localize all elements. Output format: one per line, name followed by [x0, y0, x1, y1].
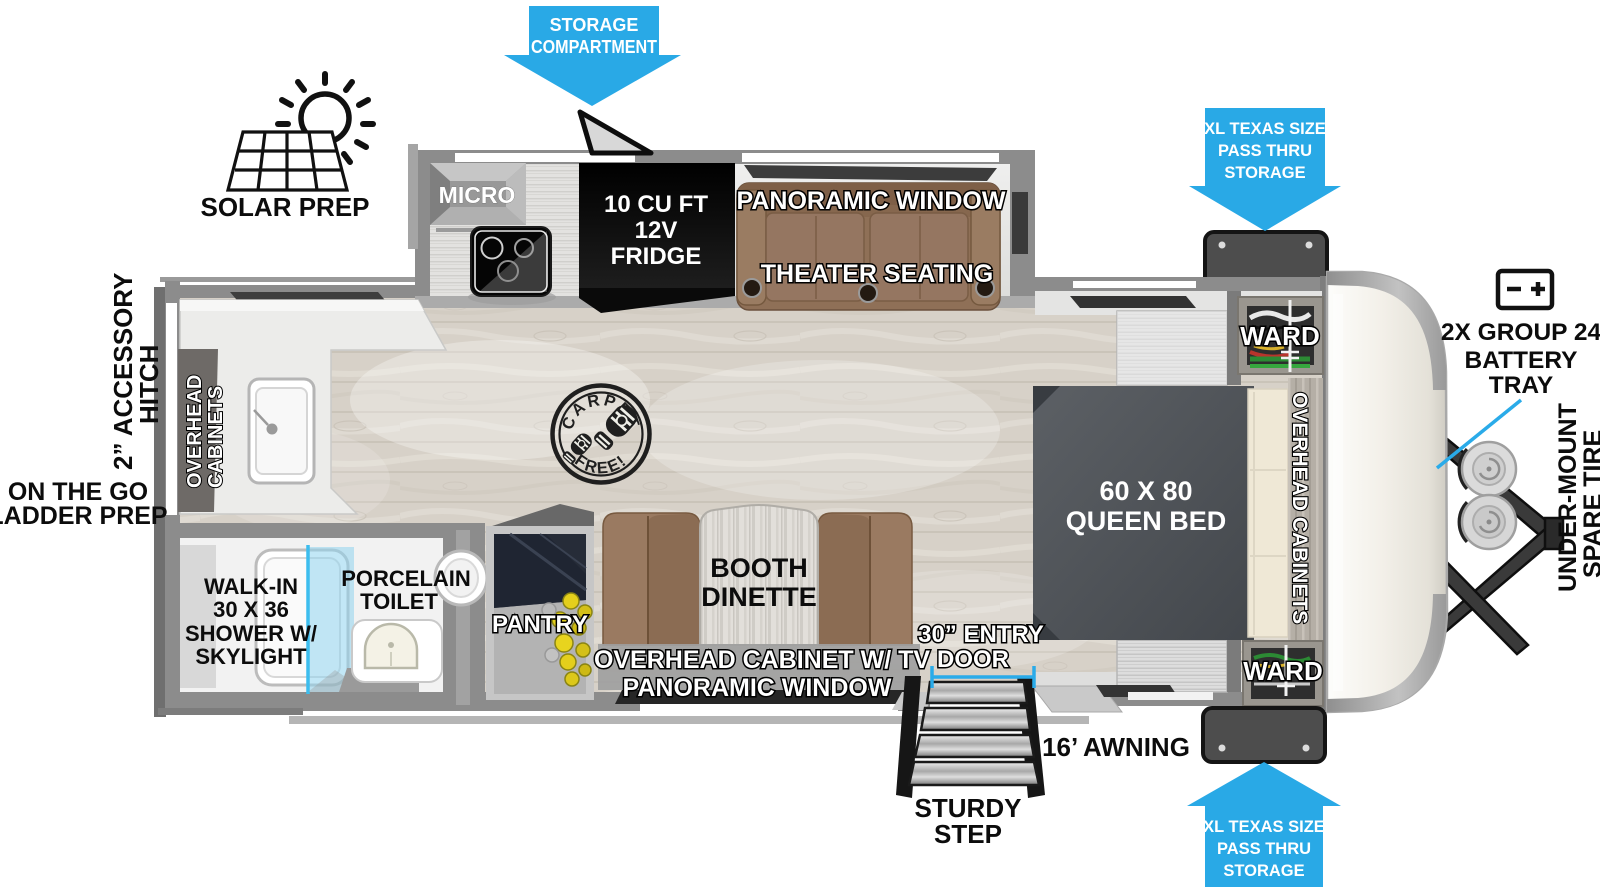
svg-text:DOOR: DOOR [937, 646, 1009, 673]
svg-text:OVERHEAD: OVERHEAD [184, 375, 206, 488]
svg-text:STORAGE: STORAGE [1223, 862, 1304, 880]
svg-text:2X GROUP 24: 2X GROUP 24 [1441, 319, 1600, 346]
svg-text:PASS THRU: PASS THRU [1218, 142, 1312, 160]
svg-text:CABINETS: CABINETS [205, 386, 227, 488]
svg-text:STEP: STEP [934, 819, 1002, 849]
svg-text:FRIDGE: FRIDGE [611, 243, 702, 270]
svg-text:30 X 36: 30 X 36 [213, 597, 289, 622]
svg-text:PANORAMIC WINDOW: PANORAMIC WINDOW [737, 187, 1006, 215]
svg-text:PASS THRU: PASS THRU [1217, 840, 1311, 858]
svg-text:QUEEN BED: QUEEN BED [1066, 506, 1227, 536]
svg-text:OVERHEAD CABINET W/ TV: OVERHEAD CABINET W/ TV [594, 646, 930, 674]
svg-text:STORAGE: STORAGE [550, 15, 639, 35]
svg-text:LADDER PREP: LADDER PREP [0, 502, 168, 530]
svg-text:SOLAR PREP: SOLAR PREP [200, 192, 369, 222]
svg-text:16’ AWNING: 16’ AWNING [1042, 732, 1190, 762]
svg-text:WARD: WARD [1240, 321, 1319, 351]
svg-text:UNDER-MOUNT: UNDER-MOUNT [1554, 403, 1582, 592]
svg-text:XL TEXAS SIZE: XL TEXAS SIZE [1204, 120, 1326, 138]
svg-text:30” ENTRY: 30” ENTRY [918, 621, 1044, 648]
svg-text:HITCH: HITCH [134, 345, 164, 424]
svg-text:PANORAMIC WINDOW: PANORAMIC WINDOW [623, 674, 892, 702]
svg-text:COMPARTMENT: COMPARTMENT [531, 37, 657, 57]
svg-text:OVERHEAD CABINETS: OVERHEAD CABINETS [1288, 392, 1311, 624]
svg-text:SPARE TIRE: SPARE TIRE [1579, 430, 1600, 578]
svg-text:PANTRY: PANTRY [492, 611, 588, 638]
svg-text:STORAGE: STORAGE [1224, 164, 1305, 182]
svg-text:BOOTH: BOOTH [710, 553, 808, 583]
svg-text:PORCELAIN: PORCELAIN [341, 566, 471, 591]
svg-text:XL TEXAS SIZE: XL TEXAS SIZE [1203, 818, 1325, 836]
svg-text:10 CU FT: 10 CU FT [604, 191, 708, 218]
svg-text:SHOWER W/: SHOWER W/ [185, 621, 317, 646]
svg-text:THEATER SEATING: THEATER SEATING [761, 260, 993, 288]
svg-text:BATTERY: BATTERY [1465, 347, 1578, 374]
svg-text:12V: 12V [635, 217, 678, 244]
svg-text:60 X 80: 60 X 80 [1099, 476, 1192, 506]
svg-text:TRAY: TRAY [1489, 372, 1553, 399]
svg-text:MICRO: MICRO [439, 182, 516, 208]
svg-text:SKYLIGHT: SKYLIGHT [195, 644, 307, 669]
svg-text:WARD: WARD [1243, 656, 1322, 686]
svg-text:DINETTE: DINETTE [701, 582, 817, 612]
svg-text:WALK-IN: WALK-IN [204, 574, 298, 599]
svg-text:TOILET: TOILET [360, 589, 438, 614]
